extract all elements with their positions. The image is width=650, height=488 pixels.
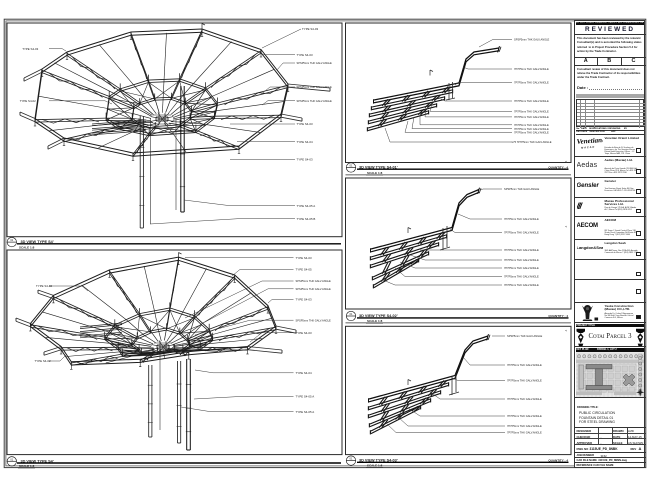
- svg-text:TYPE S4-03: TYPE S4-03: [296, 256, 312, 260]
- svg-text:TYPE S4-03: TYPE S4-03: [297, 53, 313, 57]
- svg-text:7P7P5mm THK GALV.ANGLE: 7P7P5mm THK GALV.ANGLE: [514, 99, 549, 103]
- svg-text:SPSP5mm THK GALV.ANGLE: SPSP5mm THK GALV.ANGLE: [507, 334, 543, 338]
- svg-text:7P7P5mm THK GALV.ANGLE: 7P7P5mm THK GALV.ANGLE: [514, 110, 549, 114]
- svg-text:TYPE S4-02: TYPE S4-02: [36, 284, 52, 288]
- svg-text:01: 01: [10, 457, 13, 461]
- svg-text:SCALE 1:8: SCALE 1:8: [367, 171, 383, 175]
- svg-text:TYPE S4-05 A: TYPE S4-05 A: [296, 395, 315, 399]
- svg-text:TYPE S4-03: TYPE S4-03: [22, 47, 38, 51]
- svg-text:7P7P5mm THK GALV.ANGLE: 7P7P5mm THK GALV.ANGLE: [504, 275, 539, 279]
- svg-text:7P7P5mm THK GALV.ANGLE: 7P7P5mm THK GALV.ANGLE: [514, 67, 549, 71]
- svg-text:TYPE S4-05 A: TYPE S4-05 A: [296, 410, 315, 414]
- svg-text:7P7P5mm THK GALV.ANGLE: 7P7P5mm THK GALV.ANGLE: [504, 217, 539, 221]
- svg-text:01: 01: [350, 312, 353, 316]
- svg-text:7P7P5mm THK GALV.ANGLE: 7P7P5mm THK GALV.ANGLE: [514, 131, 549, 135]
- svg-text:TYPE S4-03: TYPE S4-03: [296, 331, 312, 335]
- svg-text:SPSP5mm THK GALV.ANGLE: SPSP5mm THK GALV.ANGLE: [296, 318, 332, 322]
- svg-text:01: 01: [10, 238, 13, 242]
- svg-text:TYPE S4-05 A: TYPE S4-05 A: [297, 204, 316, 208]
- svg-text:SPSP5mm THK GALV.ANGLE: SPSP5mm THK GALV.ANGLE: [297, 61, 333, 65]
- svg-text:SCALE 1:8: SCALE 1:8: [19, 464, 35, 468]
- svg-text:SPSP5mm THK GALV.ANGLE: SPSP5mm THK GALV.ANGLE: [297, 85, 333, 89]
- svg-text:TYPE S4-05 B: TYPE S4-05 B: [297, 217, 316, 221]
- svg-text:7P7P5mm THK GALV.ANGLE: 7P7P5mm THK GALV.ANGLE: [504, 231, 539, 235]
- svg-text:-4: -4: [564, 160, 568, 163]
- svg-text:-4: -4: [564, 225, 568, 228]
- svg-text:QUANTITY : 4: QUANTITY : 4: [548, 458, 568, 462]
- svg-text:TYPE S4-03: TYPE S4-03: [297, 122, 313, 126]
- svg-text:TYPE S4-04: TYPE S4-04: [297, 140, 313, 144]
- svg-text:SCALE 1:8: SCALE 1:8: [367, 463, 383, 467]
- svg-text:TYPE S4-03: TYPE S4-03: [302, 27, 318, 31]
- svg-text:SCALE 1:8: SCALE 1:8: [19, 246, 35, 250]
- svg-text:7P7P5mm THK GALV.ANGLE: 7P7P5mm THK GALV.ANGLE: [507, 363, 542, 367]
- svg-text:L75 7P7P5mm THK GALV.ANGLE: L75 7P7P5mm THK GALV.ANGLE: [512, 140, 552, 144]
- svg-text:TYPE S4-04: TYPE S4-04: [296, 371, 312, 375]
- svg-text:-4: -4: [564, 329, 568, 332]
- svg-text:01: 01: [350, 457, 353, 461]
- svg-text:7P7P5mm THK GALV.ANGLE: 7P7P5mm THK GALV.ANGLE: [504, 283, 539, 287]
- svg-text:SPSP5mm THK GALV.ANGLE: SPSP5mm THK GALV.ANGLE: [504, 187, 540, 191]
- svg-text:QUANTITY : 4: QUANTITY : 4: [548, 314, 568, 318]
- svg-text:7P7P5mm THK GALV.ANGLE: 7P7P5mm THK GALV.ANGLE: [514, 123, 549, 127]
- svg-text:SPSP5mm THK GALV.ANGLE: SPSP5mm THK GALV.ANGLE: [296, 287, 332, 291]
- svg-text:SPSP5mm THK GALV.ANGLE: SPSP5mm THK GALV.ANGLE: [296, 279, 332, 283]
- svg-text:SPSP5mm THK GALV.ANGLE: SPSP5mm THK GALV.ANGLE: [297, 99, 333, 103]
- svg-text:TYPE S4-02: TYPE S4-02: [20, 99, 36, 103]
- svg-text:7P7P5mm THK GALV.ANGLE: 7P7P5mm THK GALV.ANGLE: [504, 266, 539, 270]
- svg-text:TYPE S4-02: TYPE S4-02: [35, 359, 51, 363]
- svg-text:TYPE S4-03: TYPE S4-03: [296, 298, 312, 302]
- svg-text:7P7P5mm THK GALV.ANGLE: 7P7P5mm THK GALV.ANGLE: [504, 258, 539, 262]
- svg-text:TYPE S4-03: TYPE S4-03: [297, 158, 313, 162]
- svg-text:7P7P5mm THK GALV.ANGLE: 7P7P5mm THK GALV.ANGLE: [507, 379, 542, 383]
- svg-text:01: 01: [350, 164, 353, 168]
- svg-text:7P7P5mm THK GALV.ANGLE: 7P7P5mm THK GALV.ANGLE: [507, 397, 542, 401]
- svg-text:QUANTITY : 4: QUANTITY : 4: [548, 165, 568, 169]
- svg-text:7P7P5mm THK GALV.ANGLE: 7P7P5mm THK GALV.ANGLE: [514, 115, 549, 119]
- svg-text:7P7P5mm THK GALV.ANGLE: 7P7P5mm THK GALV.ANGLE: [514, 127, 549, 131]
- svg-text:7P7P5mm THK GALV.ANGLE: 7P7P5mm THK GALV.ANGLE: [507, 424, 542, 428]
- svg-text:TYPE S4-05: TYPE S4-05: [296, 268, 312, 272]
- svg-text:SPSP5mm THK GALV.ANGLE: SPSP5mm THK GALV.ANGLE: [514, 38, 550, 42]
- svg-text:SCALE 1:8: SCALE 1:8: [367, 319, 383, 323]
- svg-text:7P7P5mm THK GALV.ANGLE: 7P7P5mm THK GALV.ANGLE: [504, 248, 539, 252]
- svg-text:7P7P5mm THK GALV.ANGLE: 7P7P5mm THK GALV.ANGLE: [507, 414, 542, 418]
- svg-text:7P7P5mm THK GALV.ANGLE: 7P7P5mm THK GALV.ANGLE: [514, 81, 549, 85]
- svg-text:7P7P5mm THK GALV.ANGLE: 7P7P5mm THK GALV.ANGLE: [507, 431, 542, 435]
